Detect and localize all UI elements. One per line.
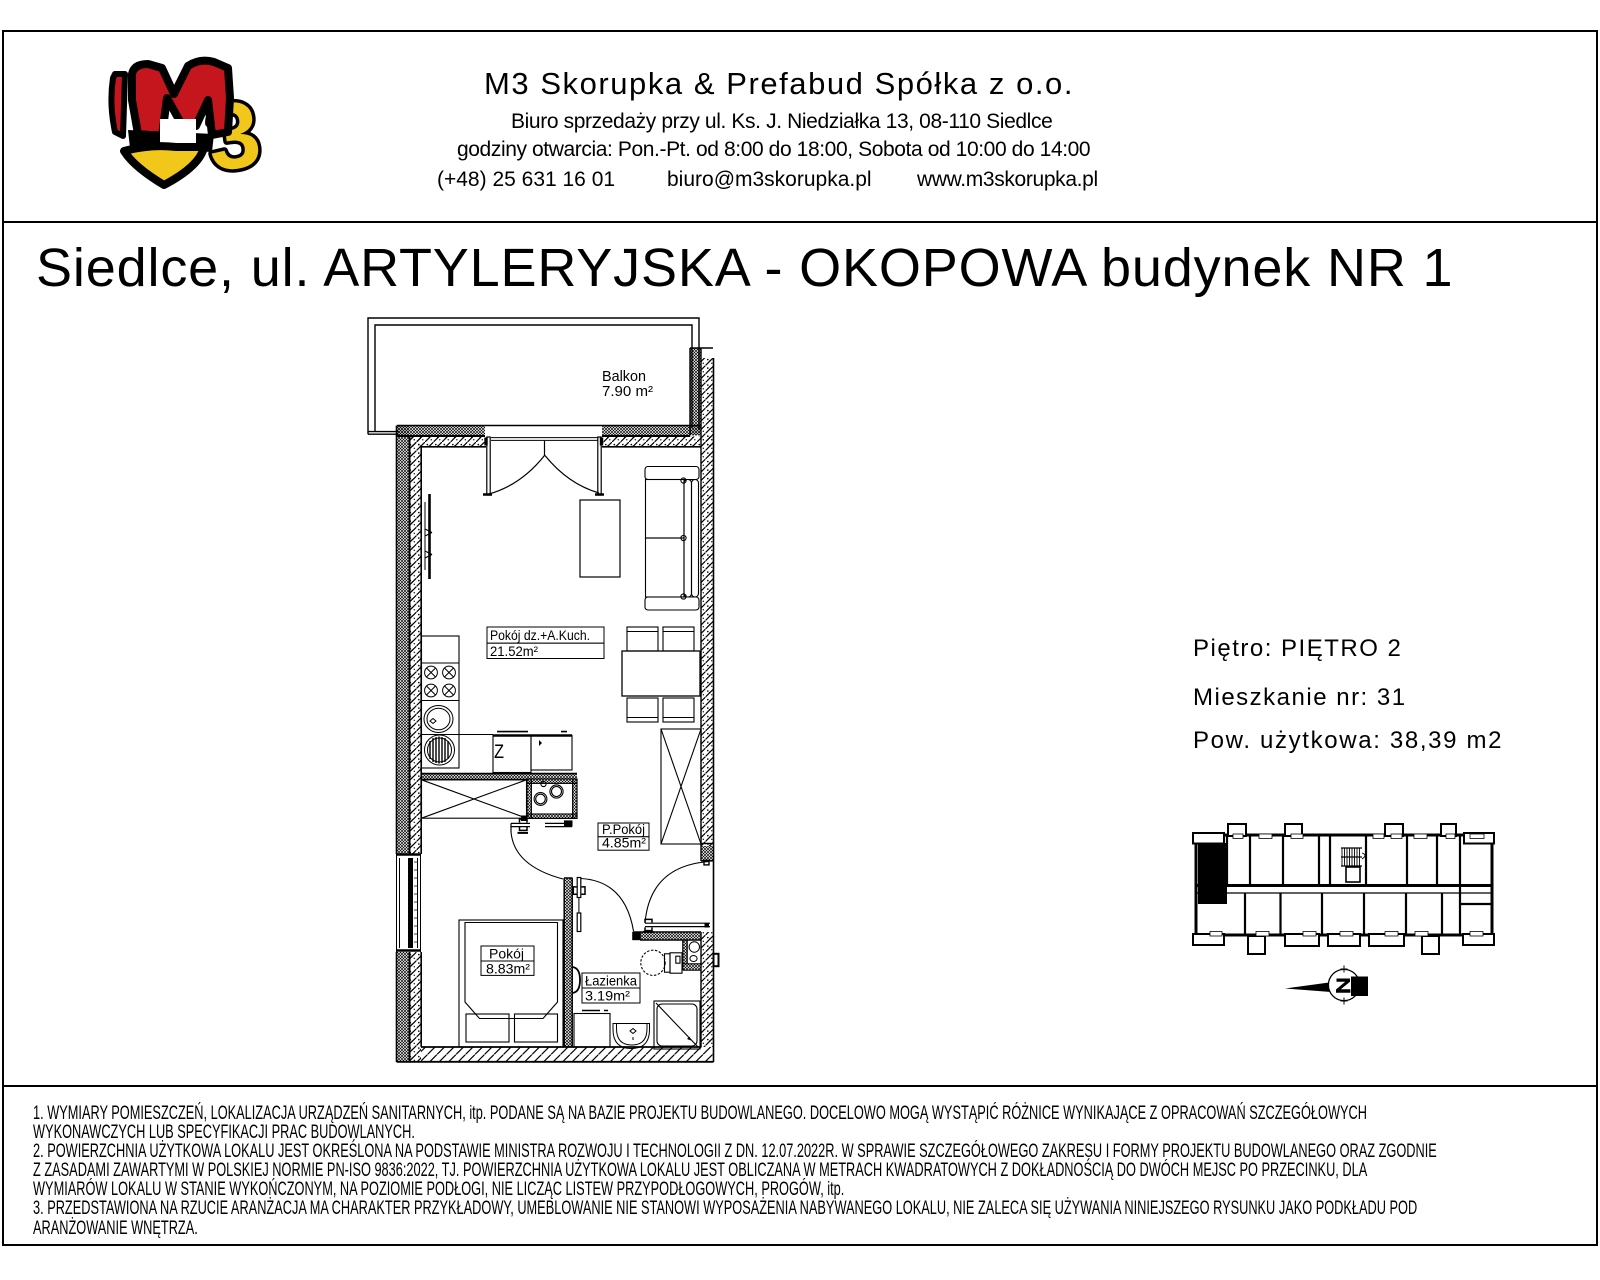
- svg-text:Pokój dz.+A.Kuch.: Pokój dz.+A.Kuch.: [490, 627, 590, 643]
- svg-text:Pokój: Pokój: [489, 946, 524, 962]
- svg-text:Łazienka: Łazienka: [585, 973, 637, 989]
- svg-text:7.90 m²: 7.90 m²: [602, 384, 653, 400]
- svg-text:21.52m²: 21.52m²: [490, 643, 538, 659]
- svg-text:8.83m²: 8.83m²: [486, 961, 530, 977]
- svg-text:Balkon: Balkon: [602, 369, 646, 385]
- svg-text:Z: Z: [494, 742, 504, 763]
- svg-text:4.85m²: 4.85m²: [602, 836, 647, 851]
- svg-text:3.19m²: 3.19m²: [585, 988, 630, 1004]
